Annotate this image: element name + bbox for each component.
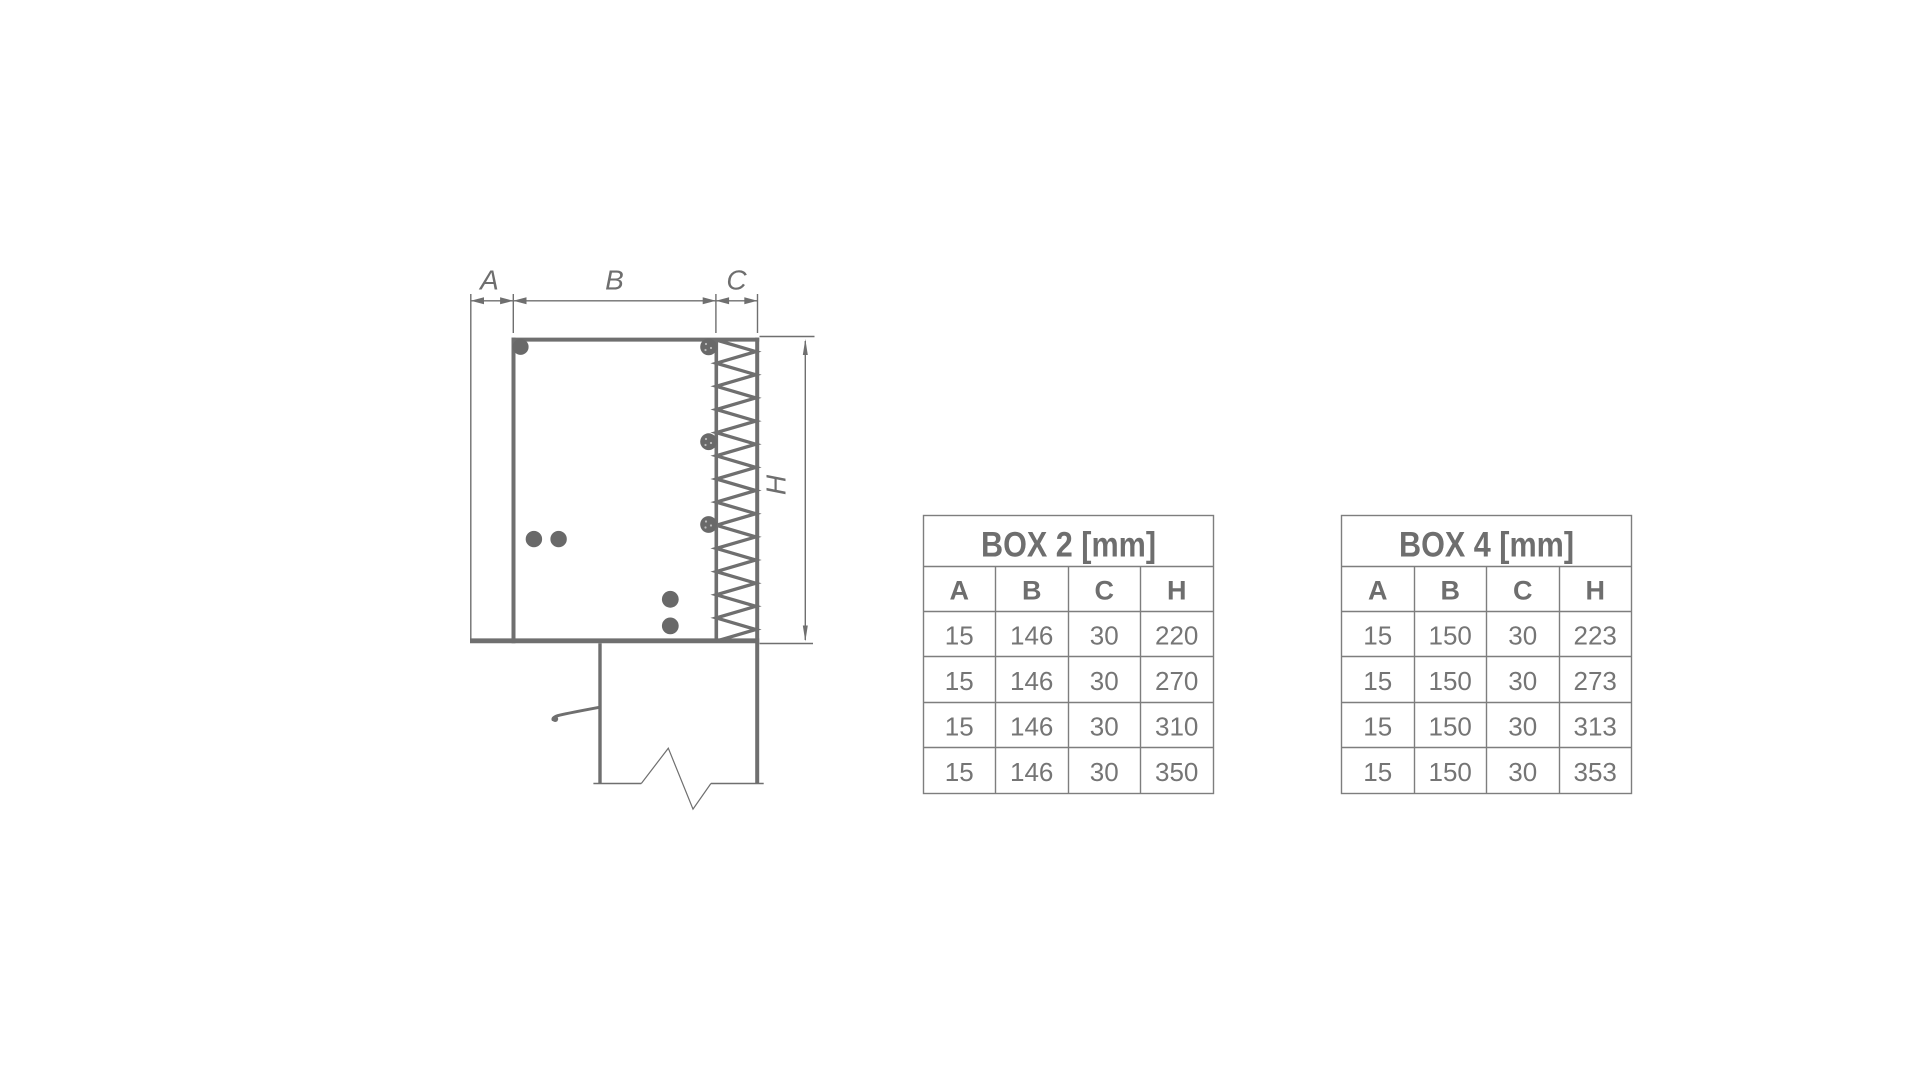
svg-text:146: 146 xyxy=(1010,712,1053,742)
svg-text:150: 150 xyxy=(1429,621,1472,651)
svg-text:30: 30 xyxy=(1508,712,1537,742)
svg-text:B: B xyxy=(1440,576,1460,606)
svg-text:A: A xyxy=(478,265,499,296)
svg-text:BOX 4 [mm]: BOX 4 [mm] xyxy=(1399,526,1574,565)
svg-text:15: 15 xyxy=(945,712,974,742)
svg-text:H: H xyxy=(1167,576,1187,606)
svg-text:B: B xyxy=(605,265,624,296)
svg-text:146: 146 xyxy=(1010,757,1053,787)
svg-text:30: 30 xyxy=(1090,712,1119,742)
svg-text:146: 146 xyxy=(1010,666,1053,696)
svg-text:30: 30 xyxy=(1508,666,1537,696)
svg-text:310: 310 xyxy=(1155,712,1198,742)
svg-text:C: C xyxy=(1513,576,1533,606)
svg-text:146: 146 xyxy=(1010,621,1053,651)
svg-text:C: C xyxy=(1094,576,1114,606)
svg-text:223: 223 xyxy=(1574,621,1617,651)
svg-text:30: 30 xyxy=(1508,757,1537,787)
svg-text:150: 150 xyxy=(1429,712,1472,742)
svg-text:H: H xyxy=(761,474,792,495)
svg-text:30: 30 xyxy=(1090,757,1119,787)
svg-text:30: 30 xyxy=(1090,666,1119,696)
svg-text:220: 220 xyxy=(1155,621,1198,651)
svg-text:15: 15 xyxy=(1363,666,1392,696)
svg-text:350: 350 xyxy=(1155,757,1198,787)
svg-text:273: 273 xyxy=(1574,666,1617,696)
svg-text:15: 15 xyxy=(1363,712,1392,742)
svg-text:15: 15 xyxy=(945,666,974,696)
svg-text:15: 15 xyxy=(945,757,974,787)
svg-text:150: 150 xyxy=(1429,666,1472,696)
svg-text:270: 270 xyxy=(1155,666,1198,696)
svg-text:C: C xyxy=(726,265,747,296)
svg-text:A: A xyxy=(1368,576,1388,606)
svg-text:30: 30 xyxy=(1508,621,1537,651)
svg-text:150: 150 xyxy=(1429,757,1472,787)
svg-text:30: 30 xyxy=(1090,621,1119,651)
svg-text:353: 353 xyxy=(1574,757,1617,787)
svg-text:BOX 2 [mm]: BOX 2 [mm] xyxy=(981,526,1156,565)
svg-text:15: 15 xyxy=(1363,757,1392,787)
svg-text:313: 313 xyxy=(1574,712,1617,742)
svg-text:A: A xyxy=(949,576,969,606)
svg-text:15: 15 xyxy=(1363,621,1392,651)
svg-text:15: 15 xyxy=(945,621,974,651)
svg-text:H: H xyxy=(1585,576,1605,606)
svg-text:B: B xyxy=(1022,576,1042,606)
